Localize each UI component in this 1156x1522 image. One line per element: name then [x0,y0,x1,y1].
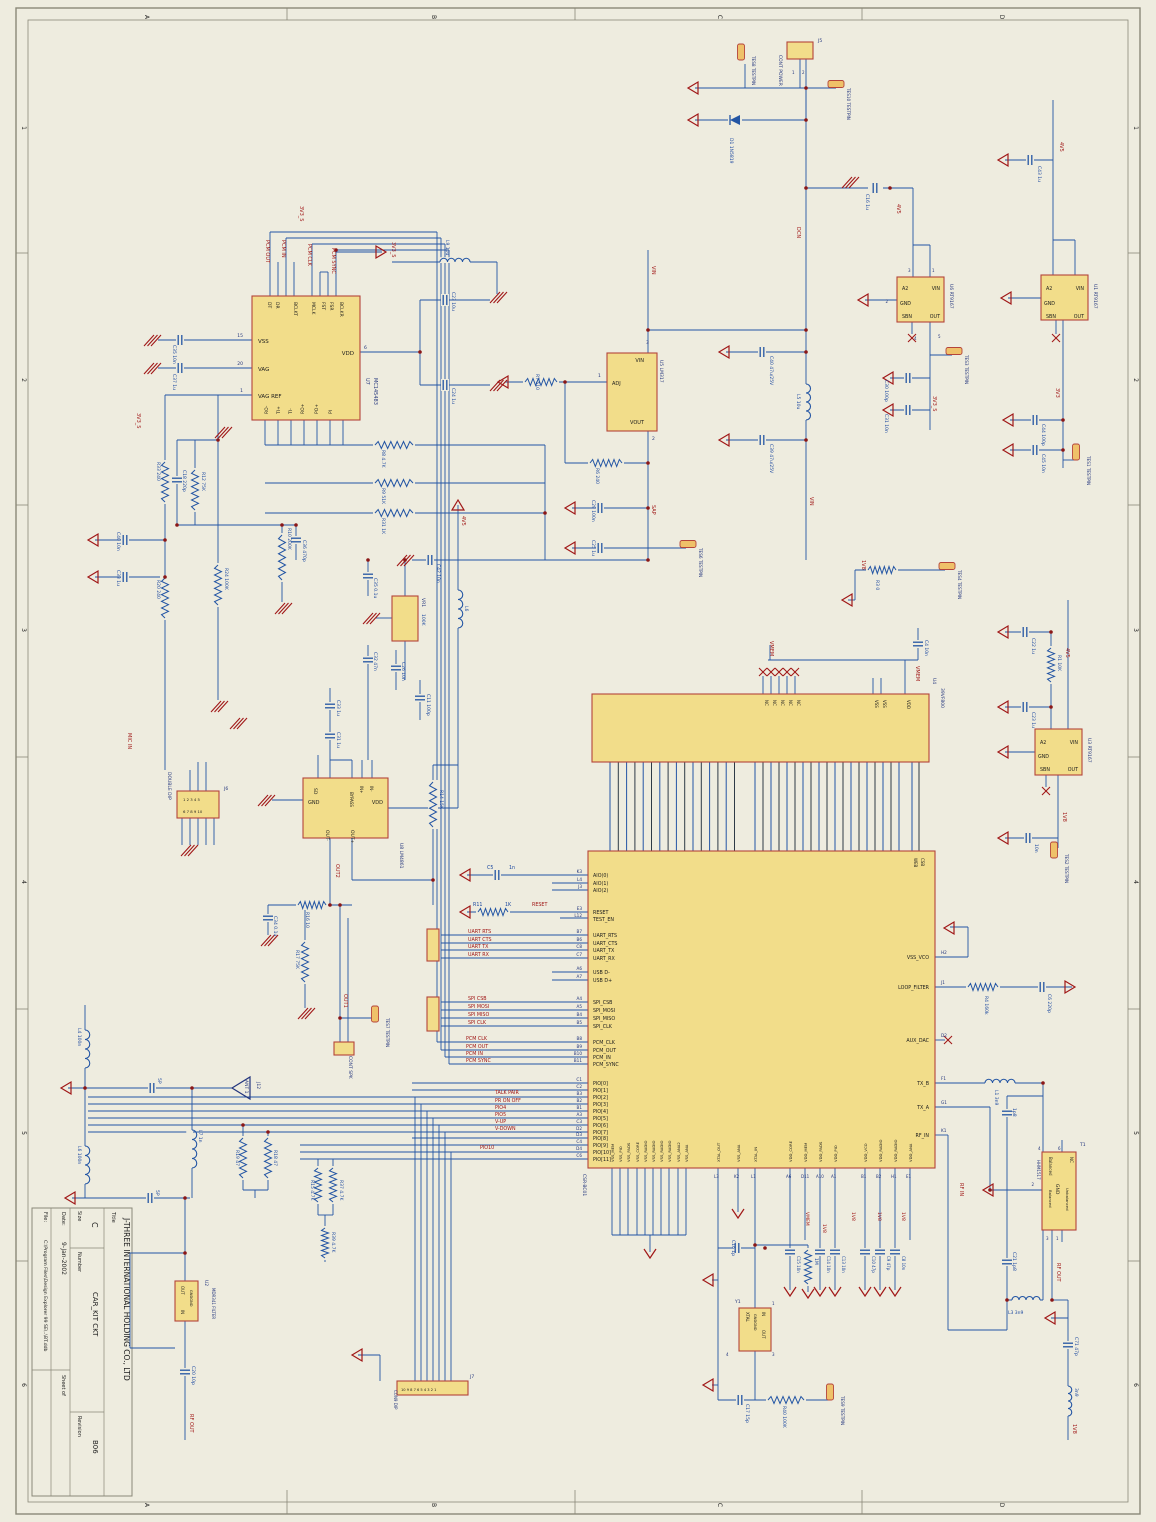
chip-pin-label: RF_IN [916,1133,930,1139]
value-label: C9 47p [886,1256,891,1271]
ref-label: 20 [237,361,243,367]
ref-label: U7 [364,378,370,385]
junction-dot [1050,1298,1054,1302]
U8-amp [303,778,388,838]
chip-pin-label: UART_CTS [593,941,617,947]
symbol-mask [324,732,336,740]
chip-pin-number: B11 [574,1058,583,1063]
pin-label: A2 [902,286,908,292]
value-label: C26 10n [400,662,406,681]
value-label: C40 10n [115,532,121,551]
chip-pin-label: PIO[7] [593,1130,608,1136]
value-label: 10n [1033,844,1039,853]
chip-pin-label: TX_A [916,1105,930,1111]
chip-pin-number: A4 [576,996,582,1001]
chip-pin-number: K3 [577,869,583,874]
junction-dot [216,438,220,442]
value-label: R12 75K [200,472,206,492]
pin-label: NC [1069,1157,1074,1163]
value-label: C35 0.1u [372,578,378,598]
testpin [738,44,745,60]
net-label: RESET [532,902,547,908]
chip-pin-label: LOOP_FILTER [898,985,929,991]
pin-label: VSS [258,339,269,345]
net-label: 1V8 [860,560,866,570]
symbol-mask [426,554,434,566]
value-label: R40 100K [781,1406,787,1429]
pin-label: BYPASS [349,792,354,807]
pin-label: VAG REF [258,394,282,400]
testpin-label: TES2 TESTPIN [1064,853,1069,883]
ref-label: ANT 1 [243,1080,249,1094]
pin-label: BCLKT [292,302,298,316]
junction-dot [543,511,547,515]
frame-row-number: 2 [1132,378,1139,382]
chip-pin-label: VDD_ANA [908,1143,913,1162]
junction-dot [280,523,284,527]
chip-pin-label: XTAL_IN [753,1147,758,1162]
frame-col-letter: B [430,15,437,19]
junction-dot [763,1246,767,1250]
chip-pin-label: VSS_MEM [610,1144,615,1162]
symbol-mask [121,534,129,546]
date-value: 9-Jan-2002 [60,1242,67,1275]
value-label: R8 4.7K [380,450,386,469]
chip-pin-label: PIO[3] [593,1102,608,1108]
junction-dot [338,1016,342,1020]
symbol-mask [859,1248,871,1256]
value-label: R33 240 [155,462,161,481]
junction-dot [646,558,650,562]
chip-pin-number: B4 [576,1012,582,1017]
value-label: C33 1u [335,700,341,716]
chip-pin-label: VSS_CORE [635,1141,640,1162]
net-label: SPI CSB [468,996,487,1002]
net-label: 1V8 [876,1212,882,1221]
ref-label: U8 LM4861 [398,843,404,869]
value-label: R14 15K [438,790,444,810]
chip-pin-number: L1 [751,1174,756,1179]
junction-dot [241,1123,245,1127]
value-label: L7 1n [197,1130,203,1143]
junction-dot [83,1086,87,1090]
chip-pin-number: L12 [574,913,582,918]
value-label: 100K [420,614,426,627]
pin-label: GND [308,800,320,806]
junction-dot [163,575,167,579]
junction-dot [1005,1298,1009,1302]
net-label: OUT1 [342,994,348,1008]
junction-dot [403,558,407,562]
file-value: C:\Program Files\Design Explorer 99 SE\.… [42,1240,48,1352]
chip-pin-label: PIO[0] [593,1081,608,1087]
value-label: 5P [154,1190,160,1196]
pin-label: NC [788,700,793,706]
pin-label: A2 [1040,740,1046,746]
frame-row-number: 5 [20,1131,27,1135]
frame-col-letter: B [430,1503,437,1507]
chip-pin-label: PIO[1] [593,1088,608,1094]
ref-label: U6 RT9167 [948,284,954,309]
chip-pin-label: PIO[6] [593,1123,608,1129]
chip-pin-number: J1 [940,980,945,985]
net-label: PR ON OFF [495,1098,521,1104]
frame-row-number: 1 [20,126,27,130]
junction-dot [338,903,342,907]
value-label: 1K [505,902,512,908]
frame-row-number: 6 [20,1383,27,1387]
junction-dot [646,461,650,465]
net-label: PCM IN [280,240,286,258]
chip-pin-label: PIO[4] [593,1109,608,1115]
junction-dot [804,438,808,442]
chip-pin-number: G1 [941,1100,947,1105]
junction-dot [1049,705,1053,709]
junction-dot [804,350,808,354]
value-label: C6 220p [1046,994,1052,1013]
value-label: R19 47 [234,1150,240,1166]
value-label: C31 10n [883,414,889,433]
number-label: Number [76,1252,82,1273]
chip-pin-number: H2 [941,950,947,955]
VR1-pot [392,596,418,641]
chip-pin-number: B3 [576,1091,582,1096]
value-label: R3 0 [874,580,880,590]
net-label: TALK PAIR [494,1090,519,1096]
value-label: R39 4.7K [330,1232,336,1253]
chip-pin-label: VSS_VCO [907,955,929,961]
date-label: Date: [60,1212,66,1226]
value-label: R6 240 [594,468,600,484]
chip-pin-label: VDD_CORE [788,1140,793,1162]
symbol-mask [596,502,604,514]
chip-pin-number: C7 [576,952,582,957]
chip-pin-number: B7 [576,929,582,934]
junction-dot [183,1251,187,1255]
junction-dot [366,558,370,562]
ref-label: J6 [223,786,228,792]
value-label: C37 1u [171,374,177,390]
value-label: C43 1u [1036,166,1042,182]
value-label: R10 200K [286,528,292,551]
net-label: SAP [650,505,656,515]
ref-label: U5 LM317 [658,360,664,383]
ref-label: J7 [469,1374,474,1380]
pin-label: VOUT [630,420,645,426]
net-label: SPI MOSI [468,1004,489,1010]
net-label: UART CTS [468,937,492,943]
junction-dot [1049,630,1053,634]
symbol-mask [493,869,501,881]
pin-label: DR [274,302,280,309]
pin-label: GND [900,301,911,307]
net-label: PCM OUT [264,240,270,264]
testpin [1051,842,1058,858]
chip-pin-label: SPI_CLK [593,1024,613,1030]
frame-row-number: 4 [20,880,27,884]
symbol-mask [148,1082,156,1094]
chip-pin-label: PIO[2] [593,1095,608,1101]
pin-label: IN [761,1312,766,1316]
pin-label: CSB [920,858,925,866]
testpin-label: TES3 TESTPIN [964,354,969,384]
net-label: V-DOWN [495,1126,516,1132]
size-label: Size [76,1211,82,1221]
testpin-label: TES9 TESTPIN [840,1395,845,1425]
value-label: L9 10u [444,240,450,256]
value-label: C29 100n [590,500,596,522]
pin-label: 1 2 3 4 5 [183,797,200,802]
pin-label: VSS [874,700,879,708]
net-label: PIO10 [480,1145,494,1151]
chip-pin-label: VSS_RADIO [659,1141,664,1162]
net-label: VMEM [914,666,920,681]
chip-pin-number: F1 [941,1076,946,1081]
chip-pin-label: TEST_EN [592,917,614,923]
chip-pin-label: USB D+ [593,978,612,984]
value-label: C33 1u [115,570,121,586]
value-label: C13 10n [841,1256,846,1273]
value-label: 1p8 [1011,1108,1017,1117]
pin-label: TI+ [276,406,282,415]
number-value: CAR_KIT CKT [91,1292,99,1337]
testpin [680,541,696,548]
symbol-mask [1026,154,1034,166]
symbol-mask [1038,981,1046,993]
ref-label: 3 [646,340,649,346]
value-label: R15 4.7K [309,1180,315,1201]
value-label: C71 47p [1073,1337,1079,1356]
symbol-mask [904,404,912,416]
frame-col-letter: D [998,15,1005,20]
chip-pin-label: VSS_PADS [626,1142,631,1162]
junction-dot [163,538,167,542]
U2-filter [175,1281,198,1321]
symbol-mask [736,1394,744,1406]
pin-label: A2 [1046,286,1052,292]
pin-label: NC [772,700,777,706]
chip-pin-label: VSS_RADIO [651,1141,656,1162]
value-label: R37 4.7K [338,1180,344,1201]
pin-label: OUT [180,1286,185,1295]
testpin [939,563,955,570]
value-label: R20 240 [155,580,161,599]
net-label: SPI CLK [468,1020,487,1026]
bluecore-chip [588,851,935,1168]
value-label: C4 10n [923,640,929,656]
value-label: C44 100p [1040,424,1046,446]
net-label: 4V5 [895,204,901,214]
chip-pin-label: VSS_ANA [736,1144,741,1162]
pin-label: IN+ [359,786,364,794]
pin-label: VIN [635,358,644,364]
size-value: C [90,1222,99,1228]
testpin [1073,444,1080,460]
net-label: RF OUT [188,1414,194,1434]
pin-label: VSS [882,700,887,708]
pin-label: RO- [264,405,270,414]
pin-label: OUT [1068,767,1078,773]
testpin-label: TES8 TESTPIN [751,55,756,85]
chip-pin-label: UART_TX [593,948,615,954]
net-label: PIO4 [495,1105,506,1111]
symbol-mask [441,294,449,306]
net-label: SPI MISO [468,1012,489,1018]
net-label: UART RTS [468,929,491,935]
ref-label: VR1 [420,598,426,607]
pin-label: NC [796,700,801,706]
testpin [946,348,962,355]
value-label: R9 51K [380,488,386,505]
value-label: C25 1u [590,540,596,556]
pin-label: Balanced [1048,1190,1053,1208]
junction-dot [266,1130,270,1134]
chip-pin-label: PCM_IN [593,1055,611,1061]
pin-label: NC [780,700,785,706]
frame-row-number: 4 [1132,880,1139,884]
value-label: 3n9 [1073,1388,1079,1397]
chip-pin-number: D3 [576,1132,582,1137]
chip-pin-number: D2 [941,1033,947,1038]
ref-label: U3 RT9167 [1086,738,1092,763]
net-label: UART RX [468,952,490,958]
chip-pin-label: PIO[9] [593,1143,608,1149]
pin-label: GND [1054,1184,1060,1195]
symbol-mask [186,1130,193,1168]
net-label: VMEM [804,1212,810,1226]
ref-label: CSR-BC01 [581,1174,587,1196]
value-label: R31 1K [380,518,386,535]
symbol-mask [912,640,924,648]
symbol-mask [871,182,879,194]
cont-spk-conn [334,1042,354,1055]
testpin [828,81,844,88]
schematic-page: J-THREE INTERNATIONAL HOLDING CO., LTD C… [0,0,1156,1522]
uart-header [427,929,439,961]
pin-label: VDD [906,700,911,709]
chip-pin-label: TX_B [916,1081,929,1087]
junction-dot [646,506,650,510]
pin-label: SBN [1046,314,1056,320]
chip-pin-number: C3 [576,1119,582,1124]
U1-ldo [1041,275,1088,320]
ref-label: 6 [364,345,367,351]
pin-label: GNDGND [189,1290,193,1307]
junction-dot [1061,448,1065,452]
chip-pin-number: D11 [801,1174,810,1179]
value-label: L6 100n [76,1146,82,1164]
file-label: File: [42,1212,48,1222]
value-label: C39 47u/25V [768,444,774,474]
chip-pin-number: C8 [576,944,582,949]
junction-dot [646,328,650,332]
pin-label: SBN [902,314,912,320]
chip-pin-number: B2 [876,1174,882,1179]
testpin-label: TES10 TESTPIN [846,87,851,120]
testpin [372,1006,379,1022]
symbol-mask [829,1248,841,1256]
net-label: 1V8 [850,1212,856,1221]
pin-label: PI [328,410,334,414]
ref-label: 15 [237,333,243,339]
net-label: 3V3_S [135,413,141,428]
pin-label: BCLKR [338,302,344,317]
symbol-mask [176,334,184,346]
value-label: L5 10u [795,394,801,410]
pin-label: GNDGND [753,1314,757,1331]
symbol-mask [784,1248,796,1256]
chip-pin-label: PIO[5] [593,1116,608,1122]
net-label: 4V5 [460,516,466,526]
frame-row-number: 3 [1132,628,1139,632]
frame-row-number: 6 [1132,1383,1139,1387]
junction-dot [563,380,567,384]
junction-dot [175,523,179,527]
value-label: L4 100n [76,1028,82,1046]
chip-pin-label: PIO[11] [593,1157,611,1163]
pin-label: VIN [1076,286,1085,292]
value-label: C40 47u/25V [768,356,774,386]
value-label: R18 47 [272,1150,278,1166]
ref-label: MC145483 [372,378,378,405]
symbol-mask [176,362,184,374]
ref-label: U1 RT9167 [1092,284,1098,309]
net-label: VIN [650,266,656,275]
chip-pin-label: PIO[8] [593,1136,608,1142]
pin-label: SD [312,788,318,795]
value-label: R24 100K [223,568,229,591]
pin-label: GND [1044,301,1055,307]
chip-pin-label: VDD_PADS [818,1141,823,1162]
value-label: C23 10u [450,292,456,311]
chip-pin-label: XTAL_OUT [716,1142,721,1162]
chip-pin-label: VSS_PIO [618,1146,623,1162]
pin-label: RO+ [300,403,306,414]
value-label: 1n [509,865,515,871]
value-label: C24 1u [450,388,456,404]
junction-dot [1041,1081,1045,1085]
chip-pin-label: VDD_RADIO [878,1140,883,1162]
value-label: C16 1p [730,1240,736,1256]
ref-label: 1 [598,373,601,379]
net-label: 3V3_S [298,206,304,221]
net-label: PCM SYNC [466,1058,491,1064]
value-label: C5 [487,865,493,871]
title-label: Title [110,1211,116,1223]
paper [0,0,1156,1522]
chip-pin-number: K2 [734,1174,740,1179]
chip-pin-number: B9 [576,1044,582,1049]
chip-pin-number: A6 [786,1174,792,1179]
net-label: 1V8 [1061,812,1067,822]
net-label: MIC IN [126,733,132,749]
sheet-label: Sheet of [60,1375,66,1396]
junction-dot [888,186,892,190]
junction-dot [183,1196,187,1200]
net-label: PCM OUT [466,1044,488,1050]
net-label: VMEM [768,641,774,656]
testpin-label: TES7 TESTPIN [385,1017,390,1047]
chip-pin-number: D2 [576,1126,582,1131]
pin-label: VDD [372,800,383,806]
pin-label: VIN [1070,740,1079,746]
value-label: C35 10n [171,345,177,364]
chip-pin-number: H1 [891,1174,897,1179]
pin-label: OUT [761,1330,766,1339]
value-label: L6 [463,606,469,612]
chip-pin-number: B1 [576,1105,582,1110]
ref-label: DOUBLE DIP [166,772,172,800]
